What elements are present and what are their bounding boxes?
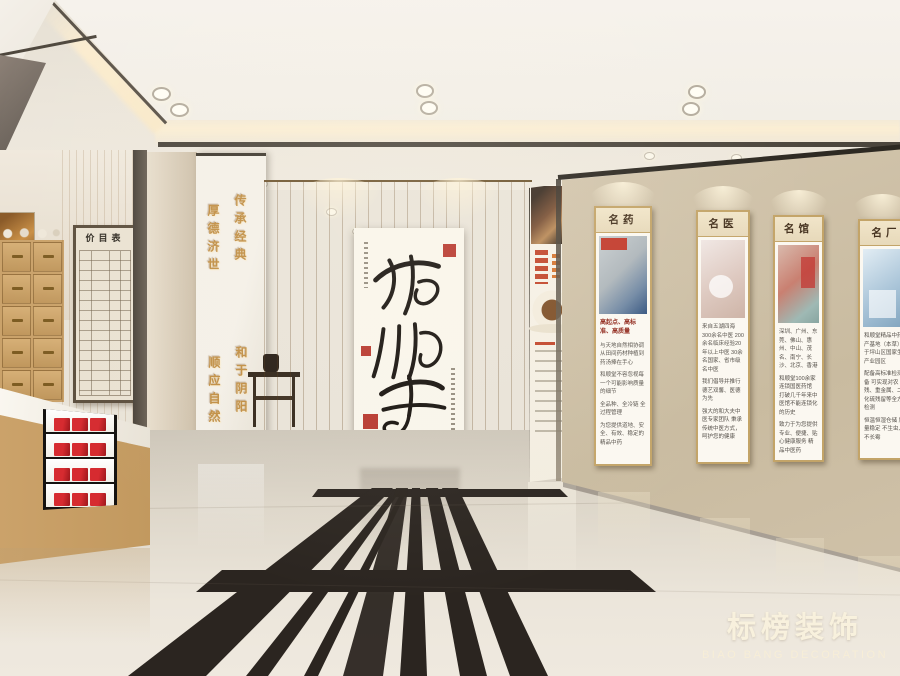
downlight-small	[644, 152, 655, 160]
gold-slogan-upper-right: 传承经典	[232, 194, 249, 312]
poster-heading: 高起点、高标准、高质量	[600, 319, 646, 338]
display-shelf	[46, 484, 114, 507]
poster-paragraph: 强大的和大夫中医专家团队 秉承传统中医方式，呵护您的健康	[702, 408, 744, 442]
product-box	[72, 418, 88, 431]
poster-paragraph: 深圳、广州、东莞、佛山、惠州、中山、茂名、南宁、长沙、北京、香港	[779, 328, 818, 371]
downlight	[152, 87, 171, 101]
corridor-wall	[147, 152, 197, 470]
product-box	[90, 493, 106, 506]
poster-paragraph: 致力于为您提供专业、便捷、贴心健康服务 精品中医药	[779, 421, 818, 455]
factory-photo	[863, 249, 900, 327]
product-display-niche	[43, 406, 117, 510]
red-seal	[363, 414, 378, 429]
display-shelf	[46, 434, 114, 457]
poster-paragraph: 和顺堂不容忽视每一个可能影响质量的细节	[600, 371, 646, 397]
product-box	[54, 493, 70, 506]
poster-body: 来自五湖四海 300余名中医 200余名临床经验20年以上中医 30余名国家、省…	[698, 321, 748, 462]
medicine-drawer	[33, 306, 62, 336]
drawer-pull	[43, 383, 54, 386]
drawer-pull	[12, 351, 23, 354]
poster-paragraph: 全品种、全冷链 全过程管理	[600, 401, 646, 418]
scroll-inscription	[451, 368, 455, 430]
poster-body: 和顺堂精品中药生产基地（本草）位于坪山区国家生物产业园区 配备高标准检测设备 可…	[860, 330, 900, 458]
tcm-hall-render: 价目表 传承经典 厚德济世 和于阴阳 顺应自然	[0, 0, 900, 676]
poster-famous-medicine: 名药 高起点、高标准、高质量 与天地自然相协调 从田间药材种植到药汤捧在手心 和…	[594, 206, 652, 466]
product-box	[54, 468, 70, 481]
hall-photo	[778, 245, 819, 323]
jar-display	[0, 224, 64, 240]
drawer-pull	[12, 255, 23, 258]
medicine-drawer	[2, 274, 31, 304]
downlight	[420, 101, 438, 115]
drawer-pull	[43, 287, 54, 290]
poster-header: 名厂	[860, 221, 900, 246]
red-text-marks	[535, 250, 548, 284]
product-box	[90, 468, 106, 481]
downlight	[170, 103, 189, 117]
poster-paragraph: 恒温恒湿仓储 质量稳定 不生虫、不长霉	[864, 417, 900, 443]
product-box	[72, 443, 88, 456]
poster-paragraph: 和顺堂精品中药生产基地（本草）位于坪山区国家生物产业园区	[864, 332, 900, 366]
doctor-photo	[701, 240, 745, 318]
medicine-drawer	[33, 370, 62, 400]
poster-header: 名药	[596, 208, 650, 233]
drawer-pull	[12, 383, 23, 386]
drawer-pull	[43, 319, 54, 322]
red-seal	[443, 244, 456, 257]
medicine-drawer	[33, 274, 62, 304]
poster-famous-doctor: 名医 来自五湖四海 300余名中医 200余名临床经验20年以上中医 30余名国…	[696, 210, 750, 464]
drawer-pull	[12, 287, 23, 290]
medicine-drawer	[2, 338, 31, 368]
calligraphy-scroll	[354, 228, 464, 448]
product-box	[72, 468, 88, 481]
medicine-drawer	[33, 242, 62, 272]
drawer-pull	[43, 351, 54, 354]
product-box	[90, 418, 106, 431]
ceiling-reveal-line	[158, 142, 900, 147]
scroll-inscription	[364, 242, 368, 288]
poster-body: 深圳、广州、东莞、佛山、惠州、中山、茂名、南宁、长沙、北京、香港 和顺堂100余…	[775, 326, 822, 460]
drawer-pull	[43, 255, 54, 258]
medicine-drawer	[33, 338, 62, 368]
gold-slogan-upper-left: 厚德济世	[205, 204, 222, 322]
display-shelf	[46, 459, 114, 482]
herb-photo	[599, 236, 647, 314]
medicine-drawer-cabinet	[0, 240, 64, 402]
poster-paragraph: 为您提供道地、安全、有效、稳定的精品中药	[600, 422, 646, 448]
drawer-pull	[12, 319, 23, 322]
red-seal	[361, 346, 371, 356]
poster-paragraph: 来自五湖四海 300余名中医 200余名临床经验20年以上中医 30余名国家、省…	[702, 323, 744, 374]
product-box	[54, 418, 70, 431]
poster-paragraph: 与天地自然相协调 从田间药材种植到药汤捧在手心	[600, 342, 646, 368]
price-list-title: 价目表	[76, 228, 134, 248]
price-list-table	[79, 250, 131, 396]
poster-paragraph: 我们倡导并推行 德艺双馨、医德为先	[702, 378, 744, 404]
product-box	[90, 443, 106, 456]
downlight	[416, 84, 434, 98]
poster-famous-factory: 名厂 和顺堂精品中药生产基地（本草）位于坪山区国家生物产业园区 配备高标准检测设…	[858, 219, 900, 460]
poster-paragraph: 配备高标准检测设备 可实现对农残、重金属、二氧化硫残留等全方位检测	[864, 370, 900, 413]
medicine-drawer	[2, 242, 31, 272]
poster-body: 高起点、高标准、高质量 与天地自然相协调 从田间药材种植到药汤捧在手心 和顺堂不…	[596, 317, 650, 464]
downlight	[688, 85, 706, 99]
poster-header: 名医	[698, 212, 748, 237]
price-list-board: 价目表	[73, 225, 137, 403]
poster-header: 名馆	[775, 217, 822, 242]
downlight	[682, 102, 700, 116]
wall-washer-glow	[414, 178, 504, 222]
poster-paragraph: 和顺堂100余家连锁国医药馆 打破几千年来中医馆不能连锁化的历史	[779, 375, 818, 418]
red-caption-mark	[535, 342, 555, 345]
product-box	[54, 443, 70, 456]
poster-famous-hall: 名馆 深圳、广州、东莞、佛山、惠州、中山、茂名、南宁、长沙、北京、香港 和顺堂1…	[773, 215, 824, 462]
medicine-drawer	[2, 306, 31, 336]
wall-corner-shadow	[556, 179, 561, 481]
product-box	[72, 493, 88, 506]
wall-washer-glow	[294, 178, 384, 222]
